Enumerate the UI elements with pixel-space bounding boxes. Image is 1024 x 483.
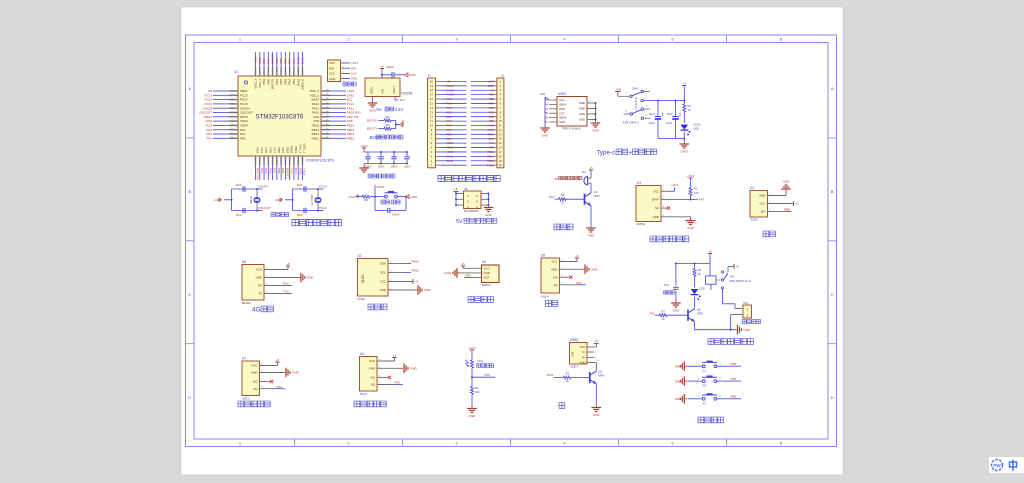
svg-text:VCC: VCC	[484, 266, 490, 270]
svg-text:J2: J2	[501, 74, 505, 78]
svg-text:USB-A: USB-A	[570, 365, 579, 369]
svg-text:DIO: DIO	[351, 66, 357, 70]
svg-text:PA3: PA3	[256, 148, 260, 154]
svg-text:CLK: CLK	[351, 72, 357, 76]
svg-text:RX2: RX2	[447, 110, 453, 114]
svg-text:ML302: ML302	[242, 301, 251, 305]
svg-text:A: A	[188, 86, 191, 91]
svg-text:STM32F103C8T6: STM32F103C8T6	[256, 115, 304, 121]
svg-text:LED: LED	[694, 127, 699, 131]
svg-text:GND: GND	[329, 77, 335, 81]
svg-text:VOUT: VOUT	[392, 86, 396, 94]
svg-text:PW: PW	[993, 463, 1001, 468]
svg-text:GND: GND	[559, 107, 565, 111]
svg-text:GND: GND	[759, 194, 765, 198]
svg-text:+5: +5	[575, 254, 579, 258]
svg-text:GND: GND	[401, 120, 405, 126]
svg-text:U9: U9	[482, 260, 486, 264]
svg-text:4G: 4G	[252, 307, 261, 314]
svg-text:BOOT0: BOOT0	[367, 119, 378, 123]
svg-text:+5: +5	[795, 202, 799, 206]
svg-text:PA6: PA6	[268, 148, 272, 154]
svg-text:VCC: VCC	[580, 345, 586, 349]
svg-text:BOOT1: BOOT1	[367, 127, 378, 131]
svg-text:GND: GND	[447, 154, 453, 158]
svg-text:22uF: 22uF	[649, 121, 656, 125]
svg-text:VBUS: VBUS	[559, 103, 567, 107]
svg-text:USB1: USB1	[558, 92, 567, 96]
svg-text:PA7: PA7	[273, 148, 277, 154]
svg-text:C: C	[188, 292, 191, 297]
svg-text:CLK: CLK	[329, 72, 335, 76]
svg-text:PB6: PB6	[489, 106, 495, 110]
svg-text:U1: U1	[234, 70, 238, 74]
svg-text:+5: +5	[595, 339, 599, 343]
svg-text:Type-c: Type-c	[597, 150, 616, 157]
svg-text:PA5: PA5	[264, 168, 268, 174]
svg-text:GND: GND	[579, 118, 585, 122]
svg-text:TX2: TX2	[283, 290, 289, 294]
svg-text:R3: R3	[566, 372, 570, 376]
svg-text:GND: GND	[488, 84, 494, 88]
svg-text:PA4: PA4	[260, 168, 264, 174]
svg-text:GND: GND	[675, 364, 683, 368]
svg-text:PA4: PA4	[277, 385, 283, 389]
svg-text:GND: GND	[410, 367, 418, 371]
svg-text:+3V3: +3V3	[468, 346, 475, 350]
svg-text:U7: U7	[242, 357, 246, 361]
svg-text:GND: GND	[579, 112, 585, 116]
svg-text:TC1: TC1	[664, 283, 670, 287]
svg-text:PA1: PA1	[447, 102, 453, 106]
svg-text:Pin HDR2X3: Pin HDR2X3	[464, 209, 479, 213]
svg-text:SG90: SG90	[751, 218, 759, 222]
svg-text:GND: GND	[783, 180, 791, 184]
svg-text:5V: 5V	[554, 177, 558, 181]
svg-text:30pF: 30pF	[297, 183, 303, 187]
svg-text:VCC: VCC	[251, 364, 257, 368]
svg-text:+5: +5	[276, 358, 280, 362]
svg-text:KET DIP4.5: KET DIP4.5	[623, 121, 639, 125]
svg-text:10K: 10K	[364, 198, 369, 202]
svg-text:+5: +5	[491, 88, 495, 92]
svg-text:NPN: NPN	[697, 312, 703, 316]
svg-text:U8: U8	[242, 260, 246, 264]
svg-text:3V3: 3V3	[400, 98, 406, 102]
svg-text:1K: 1K	[662, 317, 665, 321]
svg-text:RX: RX	[258, 284, 262, 288]
svg-text:PA11: PA11	[547, 373, 554, 377]
svg-text:TX1: TX1	[489, 141, 495, 145]
svg-text:NC: NC	[655, 206, 659, 210]
svg-text:NPN: NPN	[594, 194, 600, 198]
svg-text:GND: GND	[653, 215, 659, 219]
svg-text:PB3: PB3	[489, 119, 495, 123]
svg-text:NRST: NRST	[377, 185, 385, 189]
svg-text:PC15: PC15	[447, 93, 454, 97]
svg-text:PB13: PB13	[487, 159, 494, 163]
svg-text:GND: GND	[370, 88, 374, 94]
svg-text:TX3: TX3	[290, 168, 294, 174]
svg-text:GND: GND	[744, 328, 752, 332]
svg-text:BOOT: BOOT	[370, 135, 382, 140]
svg-text:+5: +5	[393, 353, 397, 357]
svg-text:+: +	[629, 150, 633, 157]
svg-text:GND: GND	[542, 134, 550, 138]
svg-text:PB1: PB1	[447, 137, 453, 141]
svg-text:TX: TX	[258, 292, 262, 296]
svg-text:1K: 1K	[561, 201, 564, 205]
svg-text:+5: +5	[454, 187, 458, 191]
svg-text:PB7: PB7	[489, 102, 495, 106]
svg-text:GND: GND	[424, 288, 432, 292]
svg-text:A: A	[831, 86, 834, 91]
svg-text:PB13: PB13	[412, 269, 420, 273]
svg-text:PB15: PB15	[487, 150, 494, 154]
svg-text:OSCIN: OSCIN	[258, 185, 268, 189]
svg-text:DHT11: DHT11	[637, 222, 646, 226]
svg-text:GND: GND	[292, 371, 300, 375]
svg-text:TX2: TX2	[447, 106, 453, 110]
svg-text:PA2: PA2	[240, 136, 246, 140]
svg-text:10K: 10K	[385, 123, 390, 127]
svg-text:+3V3: +3V3	[687, 174, 694, 178]
svg-text:SW1: SW1	[632, 86, 639, 90]
svg-text:PB4: PB4	[489, 115, 495, 119]
svg-text:VBUS: VBUS	[559, 116, 567, 120]
svg-text:RG1: RG1	[478, 359, 484, 363]
svg-text:DIO: DIO	[329, 66, 335, 70]
svg-text:30pF: 30pF	[236, 213, 242, 217]
svg-text:PB3: PB3	[731, 362, 737, 366]
svg-text:100nF: 100nF	[386, 65, 394, 69]
svg-text:B: B	[831, 189, 834, 194]
svg-text:PC14: PC14	[447, 88, 454, 92]
svg-text:D: D	[188, 395, 191, 400]
svg-text:1K: 1K	[698, 272, 702, 276]
svg-text:10K: 10K	[385, 115, 390, 119]
svg-text:GND: GND	[551, 267, 557, 271]
svg-text:S1: S1	[703, 369, 707, 373]
svg-text:PC13: PC13	[319, 206, 327, 210]
svg-text:GND: GND	[444, 271, 452, 275]
svg-text:PA5: PA5	[264, 148, 268, 154]
svg-text:+3V3: +3V3	[351, 61, 358, 65]
svg-text:PB0: PB0	[277, 168, 281, 174]
svg-text:+3V3: +3V3	[348, 195, 355, 199]
svg-text:+5: +5	[286, 262, 290, 266]
svg-text:+5: +5	[461, 262, 465, 266]
svg-text:GND: GND	[579, 107, 585, 111]
svg-text:NPN: NPN	[598, 374, 604, 378]
svg-text:J1: J1	[428, 74, 432, 78]
svg-text:+5: +5	[683, 81, 687, 85]
svg-text:PB14: PB14	[487, 154, 494, 158]
svg-text:CLK: CLK	[301, 58, 305, 64]
svg-text:C: C	[831, 292, 834, 297]
svg-text:32.768K: 32.768K	[310, 194, 314, 205]
svg-text:PA6: PA6	[268, 168, 272, 174]
svg-text:OUT: OUT	[484, 276, 490, 280]
svg-text:GND: GND	[681, 150, 689, 154]
svg-text:VCC: VCC	[551, 260, 557, 264]
svg-text:PB1: PB1	[465, 274, 471, 278]
svg-text:10K: 10K	[475, 390, 480, 394]
svg-text:GND: GND	[687, 226, 695, 230]
svg-text:PB0: PB0	[277, 147, 281, 153]
svg-text:5V: 5V	[456, 219, 463, 225]
svg-text:100nF: 100nF	[392, 213, 400, 217]
svg-text:GND: GND	[673, 309, 681, 313]
svg-text:PA15: PA15	[487, 124, 494, 128]
svg-text:PB14: PB14	[412, 260, 420, 264]
svg-text:GND: GND	[592, 129, 600, 133]
svg-text:SR501: SR501	[482, 283, 491, 287]
svg-text:LED: LED	[700, 287, 705, 291]
svg-text:SRD-05VDC-SL-C: SRD-05VDC-SL-C	[730, 279, 752, 283]
svg-text:X10: X10	[743, 301, 749, 305]
svg-text:RX2: RX2	[283, 282, 289, 286]
svg-text:CC2: CC2	[559, 111, 565, 115]
svg-text:3.3V: 3.3V	[395, 107, 404, 112]
svg-text:SDA: SDA	[380, 262, 386, 266]
svg-text:VIN: VIN	[540, 92, 545, 96]
svg-text:PA12: PA12	[487, 128, 494, 132]
svg-text:SWCLK: SWCLK	[301, 79, 305, 90]
svg-text:PB12: PB12	[487, 163, 494, 167]
svg-text:PB8: PB8	[784, 208, 790, 212]
svg-text:U5: U5	[541, 254, 545, 258]
svg-text:OLED: OLED	[358, 297, 366, 301]
svg-text:PB12: PB12	[347, 136, 355, 140]
svg-text:OLED: OLED	[361, 274, 365, 283]
svg-text:DIO: DIO	[489, 137, 495, 141]
svg-text:GND: GND	[351, 77, 359, 81]
svg-text:+5: +5	[589, 166, 593, 170]
svg-text:PB0: PB0	[447, 132, 453, 136]
svg-text:PA0: PA0	[447, 97, 453, 101]
svg-text:1K: 1K	[566, 379, 569, 383]
svg-text:PA8: PA8	[489, 146, 495, 150]
svg-text:10K: 10K	[694, 191, 699, 195]
svg-text:PA3: PA3	[549, 195, 555, 199]
svg-text:JK1: JK1	[730, 275, 736, 279]
svg-text:BOOT1: BOOT1	[285, 168, 289, 179]
svg-text:PB8: PB8	[489, 97, 495, 101]
svg-text:DQ: DQ	[553, 275, 558, 279]
svg-text:U4: U4	[750, 186, 754, 190]
svg-text:TYPE-C-31-M-12: TYPE-C-31-M-12	[561, 128, 581, 131]
svg-text:PA7: PA7	[447, 128, 453, 132]
svg-text:GND: GND	[469, 414, 477, 418]
svg-text:100nF: 100nF	[377, 166, 385, 169]
svg-text:GND: GND	[447, 159, 453, 163]
svg-text:+5: +5	[736, 265, 740, 269]
svg-text:VCC: VCC	[759, 202, 765, 206]
svg-text:PB1: PB1	[281, 168, 285, 174]
svg-text:S3: S3	[703, 401, 707, 405]
svg-text:GND: GND	[675, 397, 683, 401]
svg-text:GND: GND	[579, 361, 585, 365]
svg-text:PA7: PA7	[273, 168, 277, 174]
svg-text:DATA: DATA	[652, 198, 659, 202]
svg-text:PB11: PB11	[447, 146, 454, 150]
svg-text:GND: GND	[675, 379, 683, 383]
svg-text:PB5: PB5	[489, 110, 495, 114]
svg-text:D-: D-	[583, 350, 586, 354]
svg-text:EC1: EC1	[650, 112, 656, 116]
svg-text:+3V3: +3V3	[671, 183, 678, 187]
svg-text:RX3: RX3	[294, 168, 298, 174]
svg-text:PC13: PC13	[447, 84, 454, 88]
svg-text:VCC: VCC	[653, 189, 659, 193]
svg-text:GND: GND	[369, 366, 375, 370]
svg-text:+3V3: +3V3	[303, 168, 307, 175]
svg-text:D: D	[831, 395, 834, 400]
svg-text:U3: U3	[637, 181, 641, 185]
svg-text:VCC: VCC	[329, 61, 335, 65]
svg-text:+5: +5	[380, 64, 384, 68]
svg-text:S2: S2	[703, 384, 707, 388]
svg-text:PB2: PB2	[285, 147, 289, 153]
svg-text:GND: GND	[485, 213, 493, 217]
svg-text:EC2: EC2	[667, 112, 673, 116]
svg-text:GND: GND	[588, 234, 596, 238]
svg-text:GND: GND	[298, 168, 302, 176]
svg-text:PB10: PB10	[447, 141, 454, 145]
svg-text:DQ: DQ	[371, 376, 376, 380]
svg-text:B1: B1	[583, 170, 587, 174]
svg-text:VIN: VIN	[381, 89, 385, 94]
svg-text:R7: R7	[662, 309, 666, 313]
svg-text:RX2 PA3: RX2 PA3	[256, 168, 260, 180]
svg-text:GND: GND	[411, 195, 419, 199]
svg-text:PB10: PB10	[290, 146, 294, 154]
svg-text:B: B	[188, 189, 191, 194]
svg-text:PB4: PB4	[731, 377, 737, 381]
svg-text:PB5: PB5	[731, 395, 737, 399]
svg-text:DQ: DQ	[253, 380, 258, 384]
svg-text:1K: 1K	[688, 108, 692, 112]
svg-text:CC1: CC1	[559, 98, 565, 102]
svg-text:GND: GND	[409, 73, 417, 77]
svg-text:GND: GND	[591, 268, 599, 272]
svg-text:PA6: PA6	[447, 124, 453, 128]
svg-text:PA11: PA11	[488, 132, 495, 136]
svg-text:PA6: PA6	[485, 373, 491, 377]
svg-text:PB11: PB11	[294, 146, 298, 153]
svg-text:+5: +5	[415, 280, 419, 284]
svg-text:D+: D+	[582, 356, 586, 360]
svg-text:VIN: VIN	[616, 88, 621, 92]
svg-text:5V: 5V	[376, 107, 381, 112]
svg-text:GND: GND	[579, 101, 585, 105]
svg-text:GND: GND	[307, 276, 315, 280]
svg-text:GND: GND	[251, 371, 257, 375]
svg-text:MO: MO	[761, 210, 766, 214]
svg-text:PC14: PC14	[319, 185, 327, 189]
svg-text:+3V3: +3V3	[360, 144, 367, 148]
svg-text:R6: R6	[561, 193, 565, 197]
svg-text:GND: GND	[256, 276, 262, 280]
svg-text:MQ-4: MQ-4	[542, 295, 549, 299]
svg-text:8MHz: 8MHz	[249, 196, 253, 204]
svg-text:100nF: 100nF	[390, 166, 398, 169]
svg-text:+5: +5	[708, 249, 712, 253]
svg-text:MQ-2: MQ-2	[243, 397, 250, 401]
svg-text:J3: J3	[464, 187, 468, 191]
svg-text:GND: GND	[380, 288, 386, 292]
svg-text:STM32F103C8T6: STM32F103C8T6	[306, 159, 334, 163]
svg-text:VCC: VCC	[256, 268, 262, 272]
svg-text:30pF: 30pF	[236, 183, 242, 187]
svg-text:U6: U6	[360, 352, 364, 356]
svg-text:PA7: PA7	[699, 198, 705, 202]
svg-text:PB12: PB12	[312, 136, 320, 140]
svg-text:VCC: VCC	[380, 280, 386, 284]
svg-text:PA5: PA5	[447, 119, 453, 123]
svg-text:VDD_1: VDD_1	[303, 143, 307, 153]
svg-text:OSCOUT: OSCOUT	[258, 206, 271, 210]
svg-text:30pF: 30pF	[297, 213, 303, 217]
svg-text:GND: GND	[559, 120, 565, 124]
svg-text:+3V3: +3V3	[487, 80, 494, 84]
svg-text:PB9: PB9	[489, 93, 495, 97]
svg-text:VCC: VCC	[369, 359, 375, 363]
svg-text:XC6206: XC6206	[401, 92, 413, 96]
svg-text:USB2: USB2	[570, 338, 579, 342]
svg-text:U2: U2	[358, 254, 362, 258]
svg-text:USB: USB	[571, 351, 575, 357]
svg-text:MQ-5: MQ-5	[360, 392, 367, 396]
svg-text:PA4: PA4	[447, 115, 453, 119]
svg-text:100nF: 100nF	[403, 166, 411, 169]
svg-text:YB: YB	[447, 80, 451, 84]
svg-text:GND: GND	[593, 413, 601, 417]
svg-text:PB1: PB1	[281, 147, 285, 153]
svg-text:SCL: SCL	[380, 271, 386, 275]
svg-text:VSS_1: VSS_1	[298, 144, 302, 154]
svg-text:GND: GND	[484, 271, 490, 275]
svg-text:PA4: PA4	[260, 148, 264, 154]
svg-text:PA2: PA2	[207, 136, 213, 140]
svg-text:PA2: PA2	[650, 311, 656, 315]
svg-text:22uF: 22uF	[666, 121, 673, 125]
svg-text:+3V3: +3V3	[447, 150, 454, 154]
